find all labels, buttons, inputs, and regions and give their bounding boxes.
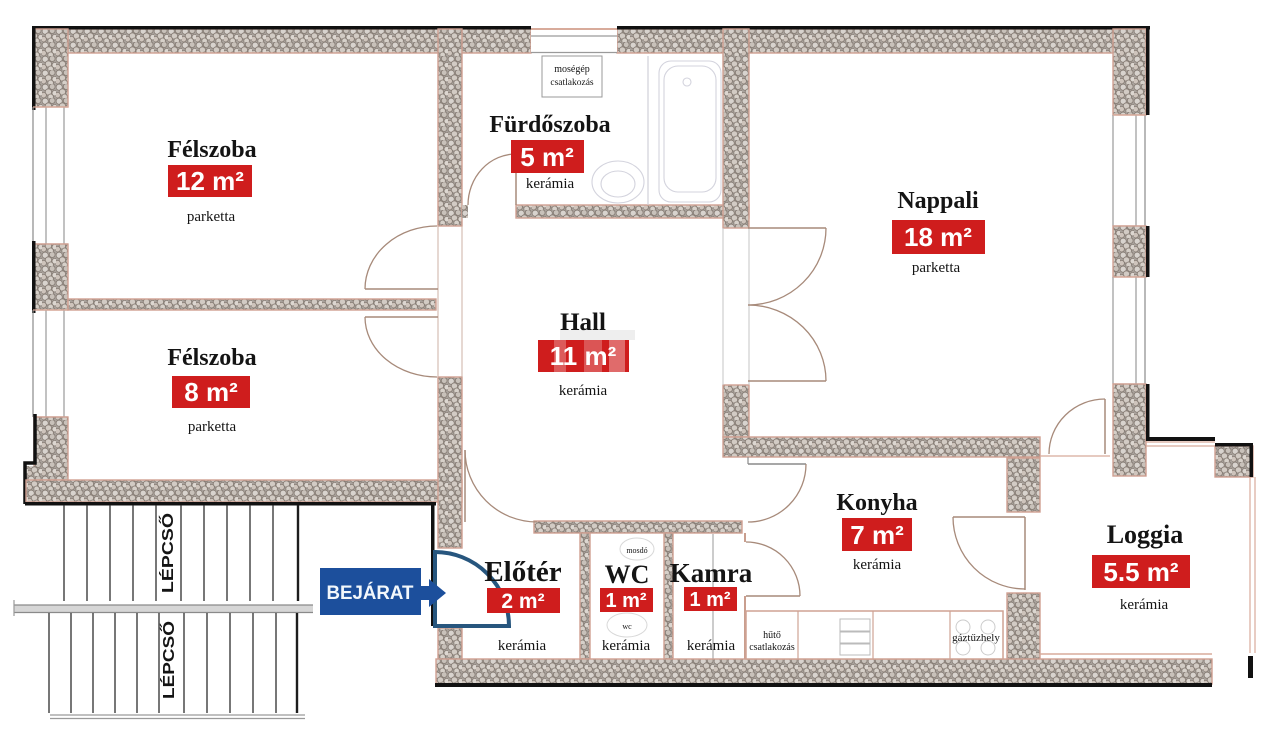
svg-text:gáztűzhely: gáztűzhely bbox=[952, 632, 1000, 644]
svg-text:1 m²: 1 m² bbox=[689, 589, 730, 611]
svg-text:parketta: parketta bbox=[187, 209, 236, 225]
svg-text:BEJÁRAT: BEJÁRAT bbox=[327, 582, 414, 604]
svg-text:Nappali: Nappali bbox=[897, 188, 979, 214]
svg-text:WC: WC bbox=[605, 560, 650, 589]
svg-text:5.5 m²: 5.5 m² bbox=[1103, 557, 1178, 587]
svg-text:parketta: parketta bbox=[188, 419, 237, 435]
svg-text:5 m²: 5 m² bbox=[520, 142, 574, 172]
svg-text:kerámia: kerámia bbox=[602, 638, 651, 654]
svg-text:kerámia: kerámia bbox=[559, 383, 608, 399]
svg-text:Konyha: Konyha bbox=[836, 490, 917, 516]
svg-text:LÉPCSŐ: LÉPCSŐ bbox=[158, 513, 177, 593]
svg-text:18 m²: 18 m² bbox=[904, 222, 972, 252]
svg-text:parketta: parketta bbox=[912, 260, 961, 276]
svg-text:Fürdőszoba: Fürdőszoba bbox=[489, 112, 610, 138]
svg-text:wc: wc bbox=[622, 622, 632, 631]
svg-text:mosdó: mosdó bbox=[626, 546, 647, 555]
svg-text:kerámia: kerámia bbox=[687, 638, 736, 654]
svg-text:hűtő: hűtő bbox=[763, 630, 781, 641]
svg-text:Félszoba: Félszoba bbox=[167, 137, 256, 163]
svg-text:1 m²: 1 m² bbox=[605, 590, 646, 612]
svg-text:kerámia: kerámia bbox=[1120, 597, 1169, 613]
svg-text:csatlakozás: csatlakozás bbox=[550, 78, 594, 88]
svg-text:kerámia: kerámia bbox=[498, 638, 547, 654]
svg-text:8 m²: 8 m² bbox=[184, 377, 238, 407]
svg-text:moségép: moségép bbox=[554, 64, 590, 75]
svg-text:Előtér: Előtér bbox=[484, 556, 561, 588]
svg-text:LÉPCSŐ: LÉPCSŐ bbox=[159, 621, 178, 699]
svg-text:12 m²: 12 m² bbox=[176, 166, 244, 196]
svg-text:7 m²: 7 m² bbox=[850, 520, 904, 550]
svg-text:kerámia: kerámia bbox=[853, 557, 902, 573]
svg-text:Félszoba: Félszoba bbox=[167, 345, 256, 371]
svg-text:2 m²: 2 m² bbox=[501, 590, 544, 613]
svg-text:Loggia: Loggia bbox=[1107, 520, 1184, 549]
svg-text:Kamra: Kamra bbox=[670, 558, 753, 588]
svg-text:kerámia: kerámia bbox=[526, 176, 575, 192]
svg-text:csatlakozás: csatlakozás bbox=[749, 642, 795, 653]
